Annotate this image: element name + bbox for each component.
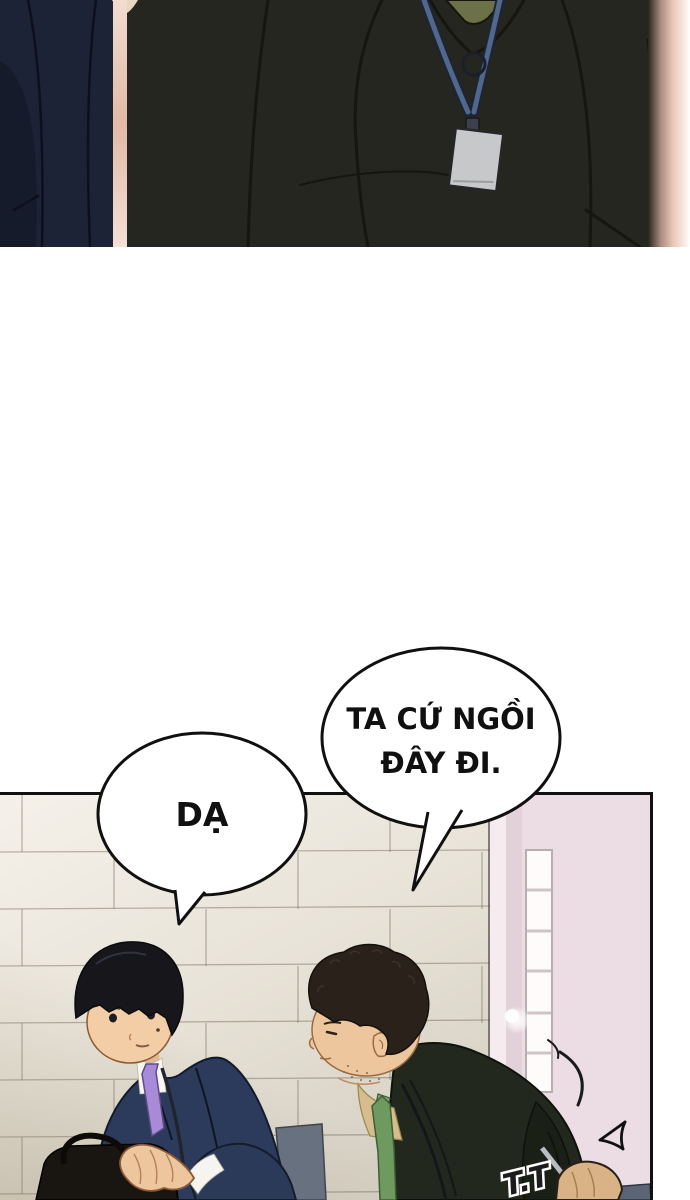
bubble-text-line1: TA CỨ NGỒI [346,698,535,736]
top-scene [0,0,690,247]
webtoon-page: T.T TA CỨ NGỒI ĐÂY ĐI. DẠ [0,0,690,1200]
edge-glow [648,0,690,247]
panel-top [0,0,690,247]
id-badge [449,128,504,191]
mole [156,1028,160,1032]
speech-bubble-reply: DẠ [88,726,323,941]
bubble-tail [175,890,205,924]
rim-light [113,0,127,247]
speech-bubble-boss: TA CỨ NGỒI ĐÂY ĐI. [300,636,580,905]
bubble-text: DẠ [176,795,229,834]
bubble-text-line2: ĐÂY ĐI. [380,746,501,780]
